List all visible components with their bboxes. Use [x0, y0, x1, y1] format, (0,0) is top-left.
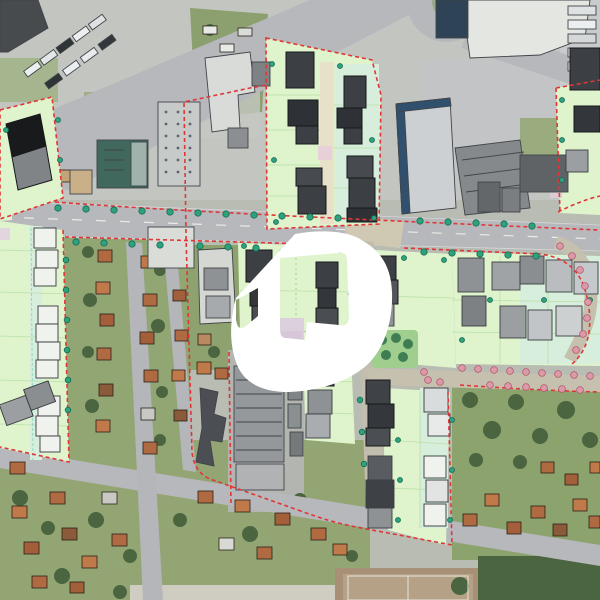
aerial-masterplan-map	[0, 0, 600, 600]
map-viewport[interactable]	[0, 0, 600, 600]
